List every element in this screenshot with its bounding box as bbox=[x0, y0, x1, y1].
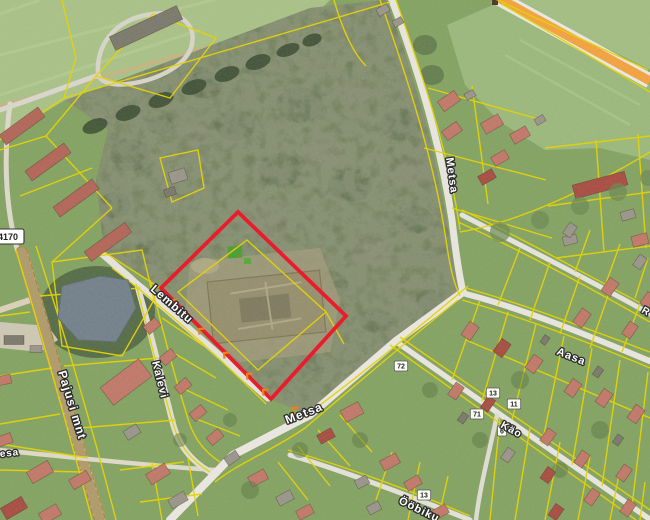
house-number-badge: 71 bbox=[470, 409, 483, 419]
house-number-text: 71 bbox=[473, 412, 481, 419]
house-number-text: 13 bbox=[489, 391, 497, 398]
house-number-badge: 11 bbox=[507, 399, 520, 409]
house-number-badge: 13 bbox=[417, 490, 430, 500]
map-viewport[interactable]: 417072131171613 LembituKaleviPajusi mntM… bbox=[0, 0, 650, 520]
house-number-badge: 72 bbox=[394, 361, 407, 371]
house-number-text: 11 bbox=[510, 402, 518, 409]
road-number-badge: 4170 bbox=[0, 229, 24, 244]
house-number-text: 72 bbox=[397, 364, 405, 371]
road-number-text: 4170 bbox=[0, 232, 18, 242]
house-number-text: 13 bbox=[420, 493, 428, 500]
photo-grain bbox=[0, 0, 650, 520]
house-number-badge: 13 bbox=[486, 388, 499, 398]
